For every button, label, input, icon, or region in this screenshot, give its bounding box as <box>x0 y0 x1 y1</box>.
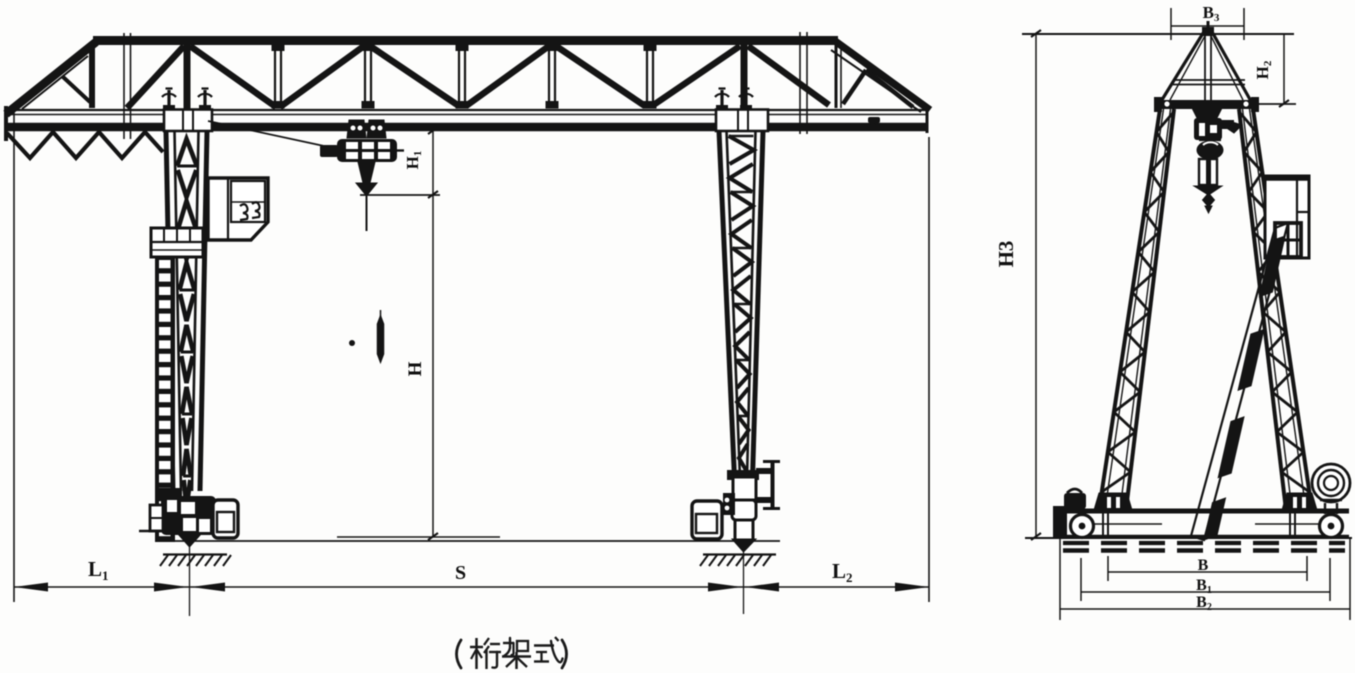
svg-text:B: B <box>1198 557 1209 574</box>
svg-text:H3: H3 <box>994 241 1018 268</box>
svg-text:H: H <box>405 361 426 376</box>
svg-text:S: S <box>455 562 466 584</box>
